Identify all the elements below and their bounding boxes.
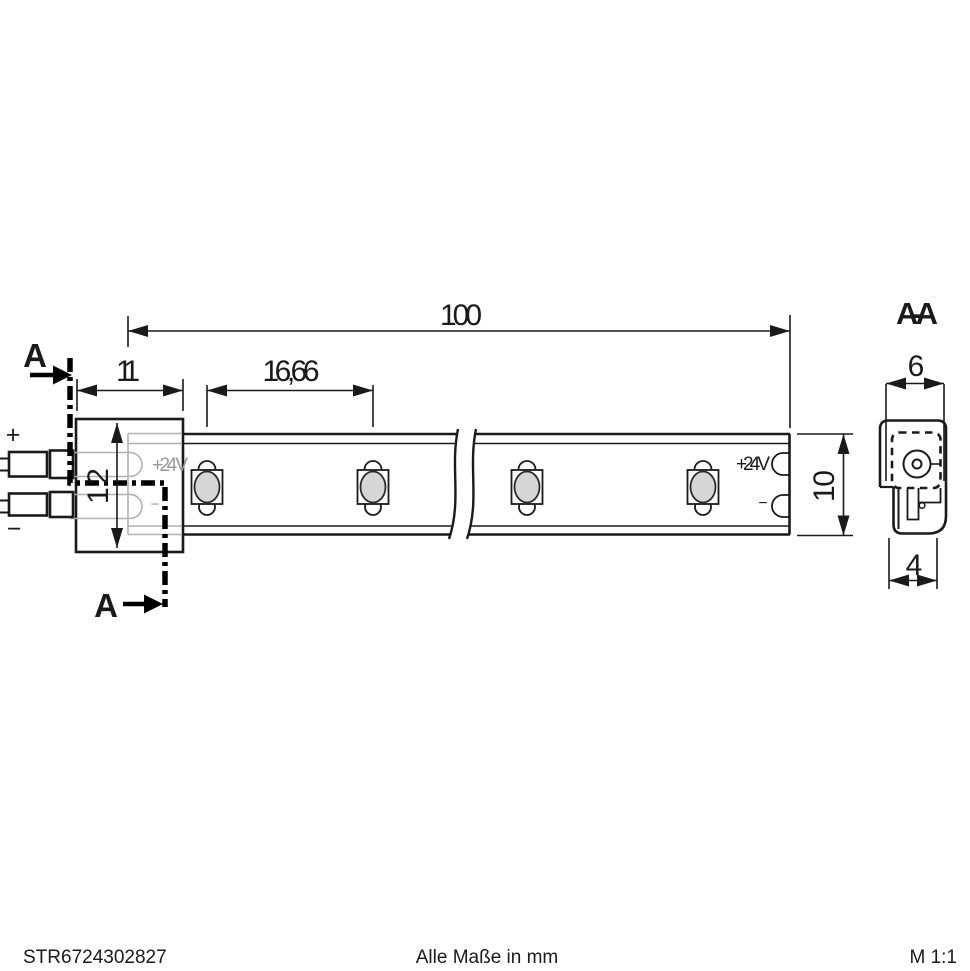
dimension-section-top-width-value: 6 (908, 350, 925, 383)
wire-minus-label: − (7, 515, 22, 543)
technical-drawing-page: +24 V − +24 V − (0, 0, 970, 971)
led-strip-drawing: +24 V − +24 V − (0, 0, 970, 971)
dimension-total-length-value: 100 (440, 299, 482, 332)
wire-plus-label: + (6, 421, 21, 449)
cut-letter-bottom: A (94, 587, 118, 624)
cut-letter-top: A (23, 337, 47, 374)
section-title: A-A (896, 296, 938, 331)
hidden-supply-label: +24 V (152, 455, 188, 476)
pad-minus-label: − (758, 495, 767, 512)
dimension-connector-width-value: 11 (116, 355, 140, 388)
dimension-section-bottom-width-value: 4 (906, 549, 923, 582)
led-lens-center (913, 460, 922, 469)
dimension-strip-height-value: 10 (808, 470, 841, 502)
pad-supply-label: +24 V (736, 454, 770, 475)
wire-crimp-plus (9, 452, 47, 477)
wire-crimp-minus (9, 494, 47, 516)
wire-tab-minus (50, 492, 73, 517)
part-number: STR6724302827 (23, 947, 167, 968)
units-note: Alle Maße in mm (416, 947, 559, 968)
hidden-minus-label: − (151, 496, 160, 513)
scale-note: M 1:1 (909, 947, 957, 968)
dimension-led-pitch-value: 16,66 (263, 355, 320, 388)
solder-pad-supply (772, 453, 790, 475)
solder-pad-minus (772, 495, 790, 517)
